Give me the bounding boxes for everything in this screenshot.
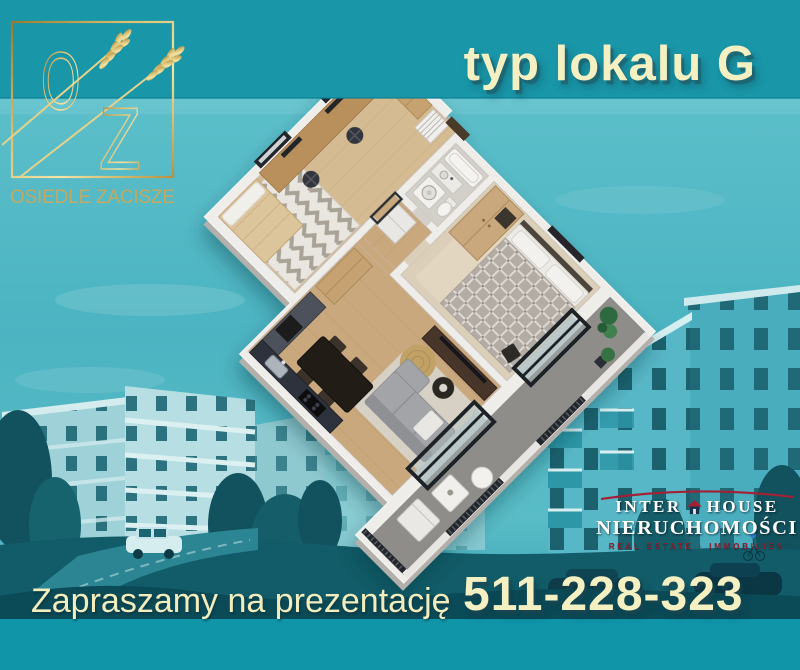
agency-subtitle: NIERUCHOMOŚCI bbox=[596, 517, 798, 540]
agency-name-left: INTER bbox=[615, 497, 681, 517]
agency-name-right: HOUSE bbox=[707, 497, 779, 517]
invitation-text: Zapraszamy na prezentację bbox=[31, 582, 451, 621]
phone-number: 511-228-323 bbox=[463, 567, 744, 622]
monogram-z: Z bbox=[99, 90, 141, 188]
agency-logo: INTER HOUSE NIERUCHOMOŚCI REAL ESTATE · … bbox=[596, 487, 798, 551]
flyer-canvas: O Z OSIEDLE ZACISZE typ lokalu G INTER H… bbox=[0, 0, 800, 670]
cloud bbox=[55, 284, 245, 316]
unit-type-title: typ lokalu G bbox=[464, 36, 756, 92]
monogram-o: O bbox=[41, 36, 81, 127]
house-icon bbox=[687, 500, 702, 515]
agency-tagline: REAL ESTATE · IMMOBILIEN bbox=[596, 542, 798, 551]
footer-band bbox=[0, 619, 800, 670]
estate-name: OSIEDLE ZACISZE bbox=[10, 187, 176, 208]
agency-name-row: INTER HOUSE bbox=[596, 497, 798, 517]
cloud bbox=[555, 186, 725, 214]
